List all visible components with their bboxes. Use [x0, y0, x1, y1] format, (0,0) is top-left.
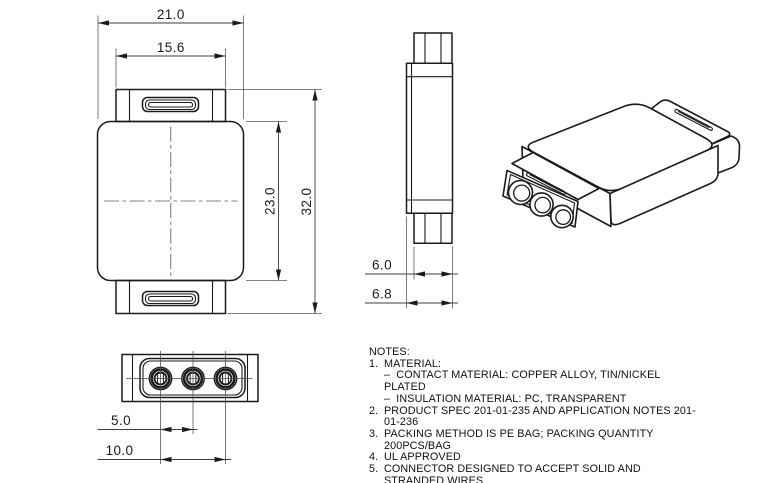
dim-body-height: 23.0 — [246, 122, 287, 281]
front-top-tab — [116, 90, 226, 122]
dim-text-6-8: 6.8 — [372, 287, 392, 302]
notes-title: NOTES: — [369, 347, 410, 359]
dim-text-5-0: 5.0 — [111, 413, 131, 428]
note-number: 2. — [369, 406, 384, 429]
bottom-view — [122, 351, 258, 464]
notes-block: NOTES: 1. MATERIAL: – CONTACT MATERIAL: … — [369, 347, 699, 483]
side-top-tab — [414, 33, 452, 63]
side-body — [407, 63, 453, 213]
note-text: CONNECTOR DESIGNED TO ACCEPT SOLID AND S… — [384, 464, 699, 483]
bottom-recess — [140, 359, 245, 398]
dim-text-23: 23.0 — [263, 187, 278, 215]
iso-hole-3 — [551, 205, 573, 227]
iso-hole-1 — [509, 181, 533, 205]
note-text: PACKING METHOD IS PE BAG; PACKING QUANTI… — [384, 429, 699, 452]
dim-text-21: 21.0 — [157, 7, 185, 22]
notes-title-row: NOTES: — [369, 347, 699, 359]
dim-text-32: 32.0 — [299, 188, 314, 216]
note-number: 1. — [369, 359, 384, 371]
isometric-view — [503, 100, 740, 228]
dim-hole-span: 10.0 — [98, 443, 232, 462]
note-line: 2. PRODUCT SPEC 201-01-235 AND APPLICATI… — [369, 406, 699, 429]
note-line: 5. CONNECTOR DESIGNED TO ACCEPT SOLID AN… — [369, 464, 699, 483]
note-number: 5. — [369, 464, 384, 483]
note-number: 3. — [369, 429, 384, 452]
side-view — [407, 33, 453, 243]
dim-hole-pitch: 5.0 — [98, 413, 198, 432]
note-line: – CONTACT MATERIAL: COPPER ALLOY, TIN/NI… — [369, 370, 699, 393]
dim-text-15-6: 15.6 — [157, 40, 185, 55]
dim-tab-width: 15.6 — [116, 40, 226, 88]
note-number — [369, 394, 384, 406]
note-line: – INSULATION MATERIAL: PC, TRANSPARENT — [369, 394, 699, 406]
front-view — [98, 90, 244, 314]
note-number — [369, 370, 384, 393]
side-bottom-tab — [414, 213, 452, 243]
technical-drawing-sheet: 21.0 15.6 23.0 32.0 — [0, 0, 783, 483]
note-text: – CONTACT MATERIAL: COPPER ALLOY, TIN/NI… — [384, 370, 699, 393]
iso-hole-2 — [530, 193, 553, 216]
note-text: PRODUCT SPEC 201-01-235 AND APPLICATION … — [384, 406, 699, 429]
note-line: 3. PACKING METHOD IS PE BAG; PACKING QUA… — [369, 429, 699, 452]
dim-text-10-0: 10.0 — [106, 443, 134, 458]
note-text: – INSULATION MATERIAL: PC, TRANSPARENT — [384, 394, 626, 406]
dim-text-6-0: 6.0 — [372, 258, 392, 273]
